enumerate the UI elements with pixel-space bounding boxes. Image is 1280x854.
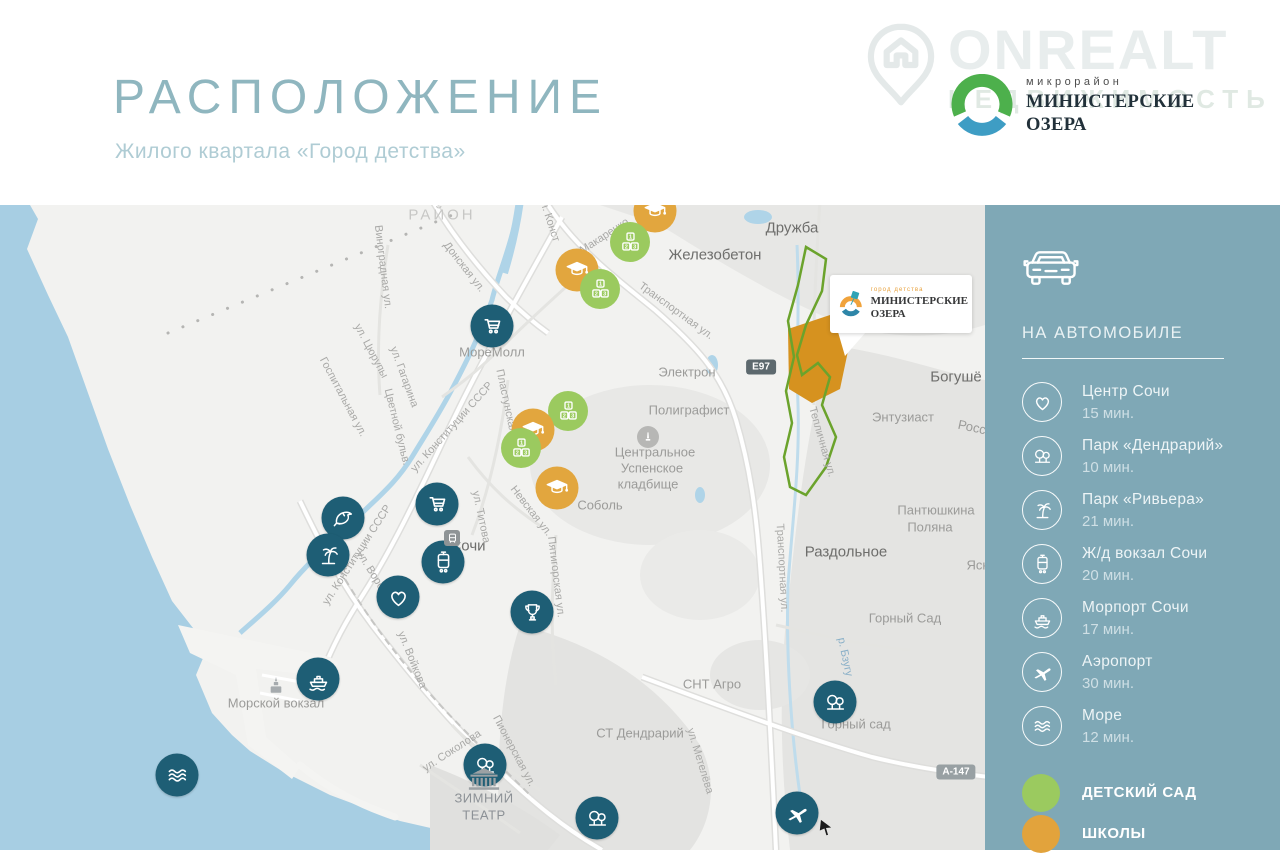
house-pin-icon: [860, 22, 942, 108]
brand-name-line1: МИНИСТЕРСКИЕ: [1026, 91, 1195, 113]
site-card-name-line2: ОЗЕРА: [871, 308, 968, 321]
travel-time-item: Аэропорт 30 мин.: [1022, 652, 1260, 706]
travel-time-label: Парк «Дендрарий»: [1082, 437, 1223, 455]
travel-time-value: 21 мин.: [1082, 513, 1204, 530]
header: ONREALT НЕДВИЖИМОСТЬ РАСПОЛОЖЕНИЕ Жилого…: [0, 0, 1280, 205]
map-label: РАЙОН: [408, 207, 475, 224]
travel-time-label: Ж/д вокзал Сочи: [1082, 545, 1207, 563]
sidebar-divider: [1022, 358, 1224, 359]
monument-icon: [637, 426, 659, 448]
travel-time-item: Парк «Дендрарий» 10 мин.: [1022, 436, 1260, 490]
cart-icon: [416, 483, 459, 526]
watermark-brand: ONREALT: [948, 22, 1273, 78]
palm-icon: [1022, 490, 1062, 530]
travel-time-value: 10 мин.: [1082, 459, 1223, 476]
site-card-name-line1: МИНИСТЕРСКИЕ: [871, 295, 968, 308]
map-label: ТЕАТР: [462, 808, 505, 823]
car-icon: [1022, 245, 1080, 291]
page-title: РАСПОЛОЖЕНИЕ: [113, 70, 608, 125]
site-card-above: город детства: [871, 287, 968, 293]
travel-time-item: Парк «Ривьера» 21 мин.: [1022, 490, 1260, 544]
road-badge: E97: [746, 360, 776, 375]
map-label: Электрон: [658, 365, 715, 380]
tram-icon: [422, 541, 465, 584]
sidebar: НА АВТОМОБИЛЕ Центр Сочи 15 мин. Парк «Д…: [985, 205, 1280, 850]
brand-above: микрорайон: [1026, 76, 1195, 88]
travel-time-value: 30 мин.: [1082, 675, 1153, 692]
map-label: Дружба: [766, 220, 819, 237]
park-trees-icon: [814, 681, 857, 724]
travel-time-item: Море 12 мин.: [1022, 706, 1260, 760]
waves-icon: [156, 754, 199, 797]
heart-icon: [1022, 382, 1062, 422]
site-callout-card: город детства МИНИСТЕРСКИЕ ОЗЕРА: [830, 275, 972, 333]
travel-time-label: Морпорт Сочи: [1082, 599, 1189, 617]
station-icon: [444, 530, 460, 546]
seaport-building-icon: [265, 675, 287, 697]
map-label: Раздольное: [805, 544, 888, 561]
trophy-icon: [511, 591, 554, 634]
map-label: Поляна: [907, 520, 952, 535]
legend-label: ДЕТСКИЙ САД: [1082, 784, 1197, 801]
map-label: Пантюшкина: [897, 503, 974, 518]
travel-time-value: 15 мин.: [1082, 405, 1170, 422]
brand-logo: микрорайон МИНИСТЕРСКИЕ ОЗЕРА: [950, 74, 1195, 138]
grad-cap-icon: [536, 467, 579, 510]
kids-blocks-icon: [610, 222, 650, 262]
tram-icon: [1022, 544, 1062, 584]
map-label: кладбище: [618, 477, 679, 492]
legend-swatch: [1022, 815, 1060, 853]
map-label: Горный Сад: [869, 611, 941, 626]
kids-blocks-icon: [501, 428, 541, 468]
travel-time-label: Море: [1082, 707, 1134, 725]
park-trees-icon: [1022, 436, 1062, 476]
map-label: Полиграфист: [649, 403, 730, 418]
arrow-icon: [816, 818, 836, 838]
travel-time-item: Ж/д вокзал Сочи 20 мин.: [1022, 544, 1260, 598]
legend-row: ШКОЛЫ: [1022, 813, 1260, 854]
travel-time-label: Аэропорт: [1082, 653, 1153, 671]
ship-icon: [297, 658, 340, 701]
travel-time-value: 12 мин.: [1082, 729, 1134, 746]
travel-time-label: Парк «Ривьера»: [1082, 491, 1204, 509]
ministerskie-ozera-logo-icon: [950, 74, 1014, 138]
road-badge: А-147: [936, 765, 975, 780]
city-map: РАЙОНДружбаЖелезобетонРаздольноеБогушёСо…: [0, 205, 985, 850]
legend-swatch: [1022, 774, 1060, 812]
ship-icon: [1022, 598, 1062, 638]
waves-icon: [1022, 706, 1062, 746]
map-label: ЗИМНИЙ: [454, 791, 513, 806]
legend-label: ШКОЛЫ: [1082, 825, 1146, 842]
transport-section-title: НА АВТОМОБИЛЕ: [1022, 324, 1260, 343]
map-label: Центральное: [615, 445, 695, 460]
travel-time-item: Морпорт Сочи 17 мин.: [1022, 598, 1260, 652]
map-label: Богушё: [930, 369, 982, 386]
brand-name-line2: ОЗЕРА: [1026, 114, 1195, 136]
heart-icon: [377, 576, 420, 619]
travel-time-item: Центр Сочи 15 мин.: [1022, 382, 1260, 436]
kids-blocks-icon: [580, 269, 620, 309]
map-label: СНТ Агро: [683, 677, 741, 692]
travel-time-list: Центр Сочи 15 мин. Парк «Дендрарий» 10 м…: [1022, 382, 1260, 760]
plane-icon: [776, 792, 819, 835]
gorod-detstva-logo-icon: [837, 286, 865, 322]
legend-row: ДЕТСКИЙ САД: [1022, 772, 1260, 813]
travel-time-label: Центр Сочи: [1082, 383, 1170, 401]
plane-icon: [1022, 652, 1062, 692]
map-label: СТ Дендрарий: [596, 726, 684, 741]
map-legend: ДЕТСКИЙ САД ШКОЛЫ: [1022, 772, 1260, 854]
travel-time-value: 17 мин.: [1082, 621, 1189, 638]
map-label: Соболь: [577, 498, 622, 513]
park-trees-icon: [576, 797, 619, 840]
travel-time-value: 20 мин.: [1082, 567, 1207, 584]
page-subtitle: Жилого квартала «Город детства»: [115, 140, 466, 164]
palm-icon: [307, 534, 350, 577]
theater-icon: [463, 768, 505, 793]
map-label: Ясн: [966, 558, 985, 573]
cart-icon: [471, 305, 514, 348]
map-label: Железобетон: [669, 247, 762, 264]
map-label: Энтузиаст: [872, 410, 934, 425]
map-label: Успенское: [621, 461, 683, 476]
